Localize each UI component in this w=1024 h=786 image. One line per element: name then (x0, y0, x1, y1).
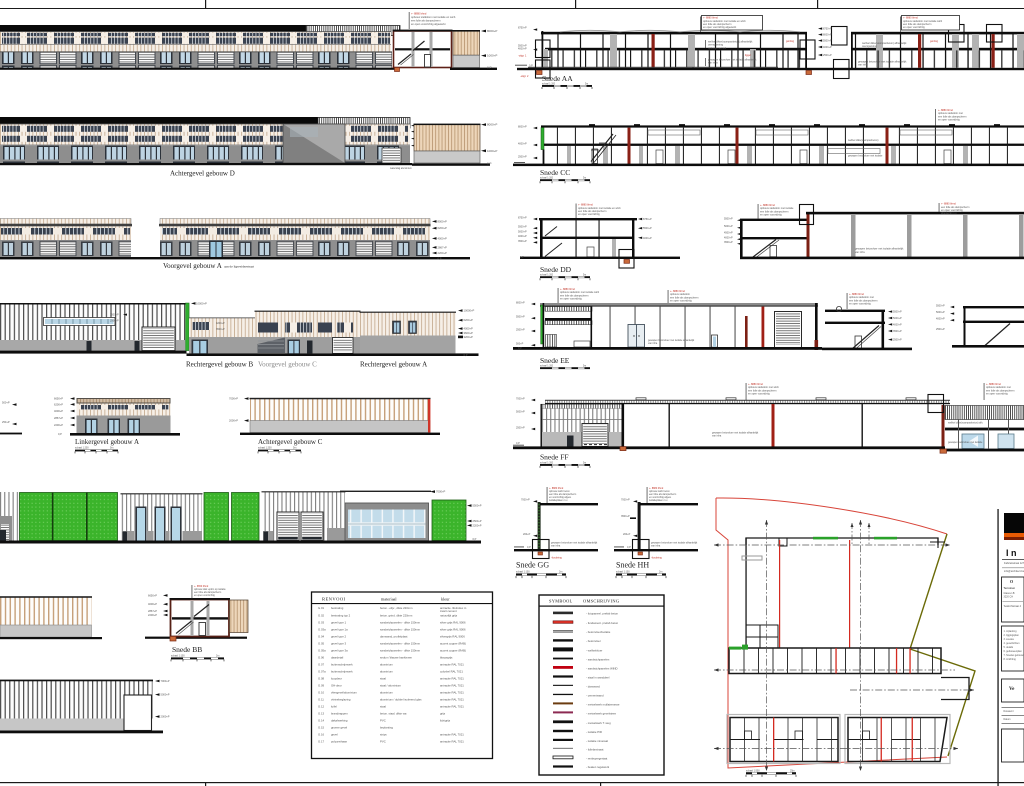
svg-text:buitenschrijnwerk: buitenschrijnwerk (331, 669, 353, 673)
svg-text:Achtergevel gebouw D: Achtergevel gebouw D (170, 170, 235, 178)
svg-text:4000+P: 4000+P (464, 327, 474, 331)
svg-text:10000+P: 10000+P (464, 309, 475, 313)
svg-text:5500+P: 5500+P (516, 316, 525, 319)
svg-text:welfsel dikte(voorspanbeton): welfsel dikte(voorspanbeton) (848, 139, 879, 142)
svg-text:antracite RAL 7021: antracite RAL 7021 (440, 697, 464, 701)
svg-text:gevel type 3: gevel type 3 (331, 641, 347, 645)
svg-text:Snede HH: Snede HH (616, 561, 649, 570)
svg-text:250+P: 250+P (2, 420, 10, 424)
svg-text:- sandwichpanelen WIND: - sandwichpanelen WIND (586, 666, 618, 670)
svg-text:en open voorzichtig: en open voorzichtig (938, 119, 960, 122)
svg-text:0,P: 0,P (438, 256, 442, 260)
svg-text:4000+P: 4000+P (724, 237, 733, 240)
svg-text:Snede BB: Snede BB (172, 645, 202, 654)
svg-text:3500+P: 3500+P (724, 241, 733, 244)
svg-text:2000+P: 2000+P (229, 419, 238, 423)
svg-text:G.12: G.12 (318, 704, 325, 708)
svg-text:van infra: van infra (858, 64, 868, 67)
svg-text:3220 CH: 3220 CH (1004, 595, 1014, 598)
svg-text:3500+P: 3500+P (110, 313, 119, 316)
svg-text:zwart cement: zwart cement (440, 609, 457, 613)
svg-text:0,P: 0,P (520, 256, 524, 259)
svg-text:schaal 1:200: schaal 1:200 (258, 447, 272, 450)
svg-text:schaal 1:500: schaal 1:500 (746, 769, 760, 772)
svg-text:van infra: van infra (551, 545, 561, 548)
svg-text:bestrating: bestrating (331, 606, 344, 610)
svg-text:en open voorzichtig: en open voorzichtig (560, 298, 582, 301)
svg-text:staal / aluminium: staal / aluminium (380, 683, 402, 687)
svg-text:RENVOOI: RENVOOI (322, 597, 346, 602)
svg-text:5500+P: 5500+P (643, 227, 652, 230)
svg-text:van infra: van infra (708, 62, 718, 65)
svg-text:G.03a: G.03a (318, 627, 326, 631)
svg-text:en open voorzichtig: en open voorzichtig (578, 213, 600, 216)
svg-text:beton. grind. dikte 220mm: beton. grind. dikte 220mm (380, 613, 413, 617)
svg-text:antracite RAL 7021: antracite RAL 7021 (440, 704, 464, 708)
svg-text:beplanting: beplanting (380, 725, 393, 729)
svg-text:G.14: G.14 (318, 718, 325, 722)
svg-text:gevel type 1: gevel type 1 (331, 620, 347, 624)
svg-text:6650+P: 6650+P (54, 397, 63, 401)
svg-text:5500+P: 5500+P (936, 304, 945, 307)
svg-text:PVC: PVC (380, 718, 386, 722)
svg-text:6200+P: 6200+P (464, 318, 474, 322)
svg-text:2500+P: 2500+P (516, 426, 525, 429)
svg-text:4000+P: 4000+P (823, 46, 832, 49)
svg-text:1000+P: 1000+P (487, 54, 497, 58)
svg-text:0,P: 0,P (473, 537, 477, 541)
svg-text:6. gebouwenplan: 6. gebouwenplan (1004, 650, 1023, 653)
svg-text:G.15: G.15 (318, 725, 325, 729)
svg-text:8000+P: 8000+P (487, 123, 497, 127)
svg-text:- metselwerk T. weg: - metselwerk T. weg (586, 721, 611, 725)
svg-text:polyurethaan: polyurethaan (331, 739, 348, 743)
svg-text:7000+P: 7000+P (161, 679, 170, 683)
svg-text:blauwgrijs: blauwgrijs (440, 655, 453, 659)
svg-text:6650+P: 6650+P (148, 593, 157, 597)
svg-text:Terreinen: Terreinen (1004, 586, 1016, 590)
svg-text:0,P: 0,P (627, 546, 631, 549)
svg-text:4000+P: 4000+P (438, 236, 448, 240)
svg-text:Linkergevel gebouw A: Linkergevel gebouw A (75, 438, 139, 446)
svg-text:Snede CC: Snede CC (540, 168, 570, 177)
svg-text:G.06: G.06 (318, 655, 325, 659)
svg-text:2867+P: 2867+P (54, 416, 63, 420)
svg-text:500+P: 500+P (516, 343, 524, 346)
svg-text:5500+P: 5500+P (823, 40, 832, 43)
svg-text:van infra: van infra (651, 545, 661, 548)
svg-text:- cementwand: - cementwand (586, 693, 604, 697)
svg-text:Rechtergevel gebouw B: Rechtergevel gebouw B (186, 361, 253, 369)
svg-text:4. gevelzichten: 4. gevelzichten (1004, 642, 1021, 645)
svg-text:10000+P: 10000+P (196, 301, 207, 305)
svg-text:5. details: 5. details (1004, 646, 1014, 649)
svg-text:5500+P: 5500+P (473, 504, 482, 508)
svg-text:0,P: 0,P (516, 442, 520, 445)
svg-text:beton. -olijv., dikte 220mm: beton. -olijv., dikte 220mm (380, 606, 413, 610)
svg-text:aluminium: aluminium (380, 662, 393, 666)
svg-text:8750+P: 8750+P (823, 28, 832, 31)
svg-text:en open voorzichtig: en open voorzichtig (670, 300, 692, 303)
svg-text:Fabriekstraat 127: Fabriekstraat 127 (1004, 561, 1024, 565)
svg-text:aan de ligweidsestraat: aan de ligweidsestraat (224, 265, 254, 269)
svg-text:2m: 2m (659, 571, 662, 574)
svg-text:5000+P: 5000+P (936, 311, 945, 314)
svg-text:G.13: G.13 (318, 711, 325, 715)
svg-text:PVC: PVC (380, 739, 386, 743)
svg-text:ligger: ligger (745, 54, 751, 57)
svg-text:G.01: G.01 (318, 606, 325, 610)
svg-text:7000+P: 7000+P (436, 489, 446, 493)
svg-text:3. snedes: 3. snedes (1004, 638, 1015, 641)
svg-text:schaal 1:100: schaal 1:100 (516, 571, 530, 574)
svg-text:schaal 1:200: schaal 1:200 (75, 447, 89, 450)
svg-text:- beaten regelwerk: - beaten regelwerk (586, 765, 610, 769)
svg-text:8000+P: 8000+P (516, 301, 525, 304)
svg-text:2200+P: 2200+P (473, 523, 482, 527)
svg-text:0,P: 0,P (529, 64, 533, 67)
svg-text:materiaal: materiaal (381, 597, 397, 602)
svg-text:overspanning: overspanning (862, 45, 878, 48)
svg-text:- renbspregeriaat: - renbspregeriaat (586, 756, 608, 760)
svg-text:gording: gording (786, 40, 795, 43)
svg-text:beton. staal. dikte var.: beton. staal. dikte var. (380, 711, 407, 715)
svg-text:accent copper (RAB): accent copper (RAB) (440, 641, 466, 645)
svg-text:2500+P: 2500+P (473, 519, 482, 523)
svg-text:3500+P: 3500+P (216, 328, 225, 331)
svg-text:OH-deur: OH-deur (331, 683, 342, 687)
svg-text:-fundering: -fundering (551, 557, 562, 560)
svg-text:4000+P: 4000+P (893, 323, 902, 326)
svg-text:2200+P: 2200+P (438, 251, 448, 255)
svg-text:8000+P: 8000+P (823, 34, 832, 37)
svg-text:gevel type 1a: gevel type 1a (331, 627, 348, 631)
svg-text:schaal 1:100: schaal 1:100 (616, 571, 630, 574)
svg-text:staal: staal (380, 676, 386, 680)
svg-text:7000+P: 7000+P (621, 499, 630, 502)
svg-text:2200+P: 2200+P (54, 423, 63, 427)
svg-text:en open voorzichtig afgewerkt: en open voorzichtig afgewerkt (411, 22, 446, 26)
svg-text:1000+P: 1000+P (487, 149, 497, 153)
svg-text:G.02: G.02 (318, 613, 325, 617)
svg-text:- isolatie PIR: - isolatie PIR (586, 730, 602, 734)
svg-text:kleur: kleur (441, 597, 450, 602)
svg-text:- fotopaneel. prefab beton: - fotopaneel. prefab beton (586, 612, 618, 616)
svg-text:sandwichpanelen - dikte 150mm: sandwichpanelen - dikte 150mm (380, 648, 421, 652)
svg-text:dakafwerking: dakafwerking (331, 718, 348, 722)
svg-text:gevel: gevel (331, 732, 338, 736)
svg-text:Snede DD: Snede DD (540, 265, 572, 274)
svg-text:6200+P: 6200+P (438, 226, 448, 230)
svg-text:8000+P: 8000+P (438, 219, 448, 223)
svg-text:aluminium: aluminium (380, 690, 393, 694)
svg-text:- fundament. prefab beton: - fundament. prefab beton (586, 621, 619, 625)
svg-text:4200+P: 4200+P (216, 322, 225, 325)
svg-text:G.07a: G.07a (318, 669, 326, 673)
svg-text:een folie als dampscherm: een folie als dampscherm (411, 19, 441, 23)
svg-text:8750+P: 8750+P (643, 218, 652, 221)
svg-text:G.05a: G.05a (318, 648, 326, 652)
svg-text:5000+P: 5000+P (516, 410, 525, 413)
svg-text:afgewerkt m.v.: afgewerkt m.v. (941, 212, 957, 215)
svg-text:8000+P: 8000+P (518, 125, 527, 128)
svg-text:Voorgevel gebouw A: Voorgevel gebouw A (163, 262, 222, 270)
svg-text:Snede GG: Snede GG (516, 561, 549, 570)
svg-text:5m: 5m (293, 447, 296, 450)
svg-text:antracite RAL 7021: antracite RAL 7021 (440, 676, 464, 680)
svg-text:7000+P: 7000+P (229, 397, 238, 401)
svg-text:3200+P: 3200+P (464, 335, 474, 339)
svg-text:5000+P: 5000+P (724, 225, 733, 228)
svg-text:brandtrappen: brandtrappen (331, 711, 348, 715)
svg-text:G.03: G.03 (318, 620, 325, 624)
svg-text:200+P: 200+P (523, 533, 531, 536)
svg-text:isolatieplaten m.v.: isolatieplaten m.v. (549, 499, 568, 502)
svg-text:2m: 2m (559, 571, 562, 574)
svg-text:- damwand: - damwand (586, 684, 600, 688)
svg-text:2500+P: 2500+P (516, 328, 525, 331)
svg-text:- isolatie mineraal: - isolatie mineraal (586, 739, 608, 743)
svg-text:zilvergrijs RAL 9006: zilvergrijs RAL 9006 (440, 634, 465, 638)
svg-text:2867+P: 2867+P (148, 609, 157, 613)
svg-text:SYMBOOL: SYMBOOL (549, 599, 573, 604)
svg-text:-uitgr. 2: -uitgr. 2 (520, 75, 529, 78)
svg-text:5500+P: 5500+P (518, 226, 527, 229)
svg-text:8000+P: 8000+P (487, 29, 497, 33)
svg-text:G.11: G.11 (318, 697, 324, 701)
svg-text:waterslag aluminium: waterslag aluminium (390, 167, 412, 170)
svg-text:staal: staal (380, 704, 386, 708)
svg-text:- betonvloer/isolatie: - betonvloer/isolatie (586, 630, 611, 634)
svg-text:luifel: luifel (331, 704, 337, 708)
svg-text:G.07: G.07 (318, 662, 325, 666)
svg-text:aluminium: aluminium (380, 669, 393, 673)
svg-text:0,P: 0,P (487, 162, 492, 166)
svg-text:500+P: 500+P (2, 400, 10, 404)
svg-text:lichtgrijs: lichtgrijs (440, 718, 451, 722)
svg-text:en open voorzichtig: en open voorzichtig (760, 214, 782, 217)
svg-text:2000+P: 2000+P (161, 715, 170, 719)
svg-text:200+P: 200+P (623, 533, 631, 536)
svg-text:gevel type 3a: gevel type 3a (331, 648, 348, 652)
svg-text:8. inrichting: 8. inrichting (1004, 658, 1017, 661)
svg-text:antracite RAL 7021: antracite RAL 7021 (440, 739, 464, 743)
svg-text:silver grijs RAL 9006: silver grijs RAL 9006 (440, 620, 466, 624)
svg-text:-fundering: -fundering (651, 557, 662, 560)
svg-text:0,P: 0,P (518, 347, 522, 350)
svg-text:3600+P: 3600+P (464, 331, 474, 335)
svg-text:gewapen betonvloer met isolati: gewapen betonvloer met isolatie (848, 155, 883, 158)
svg-text:8750+P: 8750+P (518, 27, 527, 30)
svg-text:3500+P: 3500+P (893, 330, 902, 333)
svg-text:strips: strips (380, 732, 387, 736)
svg-text:groene gevel: groene gevel (331, 725, 348, 729)
svg-text:2. liggingsplan: 2. liggingsplan (1004, 634, 1020, 637)
svg-text:van infra: van infra (648, 342, 658, 345)
svg-text:- folielaminaat: - folielaminaat (586, 747, 604, 751)
svg-text:8750+P: 8750+P (518, 216, 527, 219)
svg-text:0,P: 0,P (464, 353, 468, 357)
svg-text:natuurlijk grijs: natuurlijk grijs (440, 613, 458, 617)
svg-text:en open voorzichtig afgewerkt: en open voorzichtig afgewerkt (703, 26, 737, 29)
svg-text:bestrating typ 2: bestrating typ 2 (331, 613, 351, 617)
svg-text:G.04: G.04 (318, 634, 325, 638)
svg-text:Datum: Datum (1004, 718, 1011, 721)
svg-text:van infra: van infra (712, 435, 722, 438)
svg-text:antracite RAL 7021: antracite RAL 7021 (440, 690, 464, 694)
svg-text:7000+P: 7000+P (521, 499, 530, 502)
svg-text:damwand, profielplaat: damwand, profielplaat (380, 634, 408, 638)
svg-text:en open voorzichtig: en open voorzichtig (903, 26, 925, 29)
svg-text:5000+P: 5000+P (518, 230, 527, 233)
svg-text:sandwichpanelen - dikte 150mm: sandwichpanelen - dikte 150mm (380, 627, 421, 631)
svg-text:5500+P: 5500+P (724, 218, 733, 221)
svg-text:Snede EE: Snede EE (540, 356, 570, 365)
svg-text:isolatieplaten m.v.: isolatieplaten m.v. (649, 499, 668, 502)
svg-text:2500+P: 2500+P (893, 339, 902, 342)
svg-text:en open voorzichtig: en open voorzichtig (986, 393, 1008, 396)
svg-text:G.09: G.09 (318, 683, 325, 687)
svg-text:aluminium / dubbel isolerend g: aluminium / dubbel isolerend glas (380, 697, 422, 701)
svg-text:5000+P: 5000+P (893, 317, 902, 320)
svg-text:accent copper (RAB): accent copper (RAB) (440, 648, 466, 652)
svg-text:Tedelichtstraat 4: Tedelichtstraat 4 (1004, 605, 1022, 608)
svg-text:info@architect.be: info@architect.be (1004, 569, 1024, 573)
svg-text:daardetail: daardetail (331, 655, 344, 659)
svg-text:van infra: van infra (855, 251, 865, 254)
svg-text:2500+P: 2500+P (110, 319, 119, 322)
svg-text:G.10: G.10 (318, 690, 325, 694)
svg-text:4000+P: 4000+P (148, 602, 157, 606)
svg-text:5m: 5m (110, 447, 113, 450)
svg-text:welfsel dikte(voorspanbeton) a: welfsel dikte(voorspanbeton) afh. (948, 421, 983, 424)
svg-text:silver grijs RAL 9006: silver grijs RAL 9006 (440, 627, 466, 631)
svg-text:7000+P: 7000+P (516, 397, 525, 400)
svg-text:G.17: G.17 (318, 739, 325, 743)
svg-text:Snede FF: Snede FF (540, 453, 569, 462)
svg-text:0,P: 0,P (527, 546, 531, 549)
svg-text:- staal in wanddeel: - staal in wanddeel (586, 675, 610, 679)
svg-text:loopdeur: loopdeur (331, 676, 342, 680)
svg-text:G.08: G.08 (318, 676, 325, 680)
svg-text:sandwichpanelen - dikte 150mm: sandwichpanelen - dikte 150mm (380, 641, 421, 645)
svg-text:4000+P: 4000+P (643, 237, 652, 240)
svg-text:7. Snedes gebouw: 7. Snedes gebouw (1004, 654, 1024, 657)
svg-text:3500+P: 3500+P (518, 240, 527, 243)
svg-text:OMSCHRIJVING: OMSCHRIJVING (583, 599, 620, 604)
svg-text:4000+P: 4000+P (936, 318, 945, 321)
svg-text:4000+P: 4000+P (518, 48, 527, 51)
svg-text:-uitgr. 1: -uitgr. 1 (518, 54, 527, 57)
svg-text:antracite RAL 7021: antracite RAL 7021 (440, 683, 464, 687)
svg-text:5000+P: 5000+P (161, 693, 170, 697)
svg-text:opbouw met isol.: opbouw met isol. (708, 47, 727, 50)
svg-text:G.16: G.16 (318, 732, 325, 736)
svg-text:en open voorzichtig: en open voorzichtig (849, 303, 871, 306)
svg-text:6200+P: 6200+P (54, 402, 63, 406)
svg-text:2500+P: 2500+P (823, 54, 832, 57)
svg-text:Voorgevel gebouw C: Voorgevel gebouw C (258, 361, 317, 369)
svg-text:grijs: grijs (440, 711, 446, 715)
svg-text:2200+P: 2200+P (148, 613, 157, 617)
svg-text:gording: gording (930, 40, 939, 43)
svg-text:vliesgevel/aluminium: vliesgevel/aluminium (331, 690, 357, 694)
svg-text:0,P: 0,P (487, 65, 492, 69)
svg-text:O: O (1010, 579, 1013, 584)
svg-text:+- 8880 bhnd: +- 8880 bhnd (411, 12, 427, 16)
svg-text:Rechtergevel gebouw A: Rechtergevel gebouw A (360, 361, 427, 369)
svg-text:G.05: G.05 (318, 641, 325, 645)
svg-text:en open voorzichtig: en open voorzichtig (194, 594, 215, 597)
svg-text:antracite RAL 7021: antracite RAL 7021 (440, 662, 464, 666)
svg-text:1. inplanting: 1. inplanting (1004, 630, 1018, 633)
svg-text:Achtergevel gebouw C: Achtergevel gebouw C (258, 438, 323, 446)
svg-text:2867+P: 2867+P (438, 245, 448, 249)
svg-text:2m: 2m (216, 654, 219, 657)
svg-text:2500+P: 2500+P (518, 155, 527, 158)
svg-text:Snede AA: Snede AA (542, 74, 573, 83)
svg-text:en open voorzichtig: en open voorzichtig (748, 393, 770, 396)
svg-text:colorbel RAL 7021: colorbel RAL 7021 (440, 669, 463, 673)
svg-text:4000+P: 4000+P (518, 142, 527, 145)
svg-text:schaal 1:100: schaal 1:100 (171, 654, 185, 657)
svg-text:5500+P: 5500+P (893, 311, 902, 314)
svg-text:- metselwerk mullaterrasse: - metselwerk mullaterrasse (586, 702, 620, 706)
svg-text:opbouw stelkolom met isolatie: opbouw stelkolom met isolatie en wtcb (411, 15, 456, 19)
svg-text:- welfselvloer: - welfselvloer (586, 648, 602, 652)
svg-text:gewapen betonvloer met isolati: gewapen betonvloer met isolatie (948, 441, 983, 444)
svg-text:- metselwerk gevelsteen: - metselwerk gevelsteen (586, 711, 617, 715)
svg-text:25m: 25m (790, 769, 795, 772)
svg-text:- betonvloer: - betonvloer (586, 639, 601, 643)
svg-text:2500+P: 2500+P (936, 328, 945, 331)
svg-text:I n: I n (1006, 548, 1017, 558)
svg-text:4500+P: 4500+P (724, 231, 733, 234)
svg-text:4000+P: 4000+P (518, 235, 527, 238)
svg-text:Dossiernr: Dossiernr (1004, 710, 1014, 713)
svg-text:buitenschrijnwerk: buitenschrijnwerk (331, 662, 353, 666)
svg-text:4000+P: 4000+P (54, 409, 63, 413)
svg-text:sedum 'blauwe bankiezen: sedum 'blauwe bankiezen (380, 655, 413, 659)
svg-text:Ve: Ve (1009, 687, 1015, 692)
svg-text:0,P: 0,P (58, 432, 62, 436)
svg-text:vitrinebeglazing: vitrinebeglazing (331, 697, 351, 701)
svg-text:3500+P: 3500+P (621, 515, 630, 518)
svg-text:- sandwichpanelen: - sandwichpanelen (586, 657, 610, 661)
svg-text:antracite RAL 7021: antracite RAL 7021 (440, 732, 464, 736)
svg-text:gevel type 2: gevel type 2 (331, 634, 347, 638)
svg-text:sandwichpanelen - dikte 150mm: sandwichpanelen - dikte 150mm (380, 620, 421, 624)
